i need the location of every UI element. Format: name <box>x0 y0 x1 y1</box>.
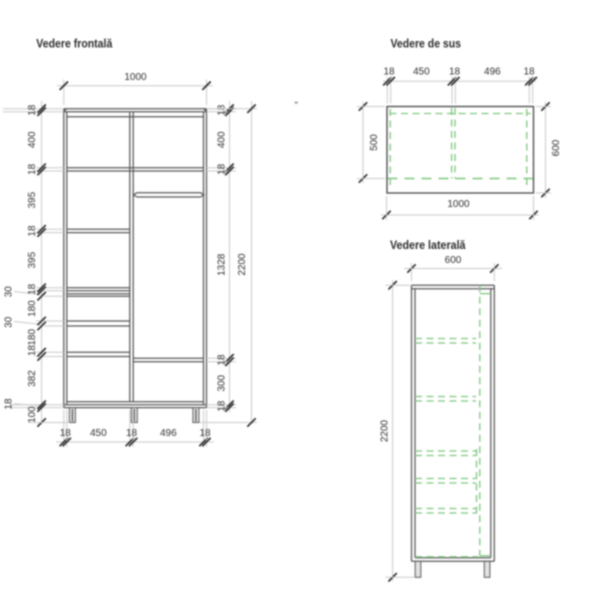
svg-text:496: 496 <box>484 67 501 78</box>
svg-text:18: 18 <box>199 428 211 439</box>
svg-text:Vedere frontală: Vedere frontală <box>36 36 112 50</box>
svg-text:18: 18 <box>4 398 15 410</box>
svg-text:18: 18 <box>27 163 38 175</box>
svg-text:100: 100 <box>27 406 38 423</box>
svg-text:180: 180 <box>27 329 38 346</box>
svg-text:18: 18 <box>217 104 228 116</box>
svg-text:18: 18 <box>27 104 38 116</box>
svg-text:18: 18 <box>126 428 138 439</box>
svg-text:18: 18 <box>449 67 461 78</box>
svg-text:18: 18 <box>383 67 395 78</box>
svg-text:400: 400 <box>217 131 228 148</box>
svg-text:300: 300 <box>217 375 228 392</box>
svg-text:180: 180 <box>27 300 38 317</box>
svg-text:18: 18 <box>27 283 38 295</box>
svg-text:395: 395 <box>27 191 38 208</box>
svg-text:395: 395 <box>27 251 38 268</box>
svg-text:2200: 2200 <box>237 253 248 276</box>
svg-text:382: 382 <box>27 370 38 387</box>
svg-text:600: 600 <box>551 139 562 156</box>
svg-text:1000: 1000 <box>124 72 147 83</box>
svg-text:30: 30 <box>4 316 15 328</box>
svg-text:Vedere de sus: Vedere de sus <box>391 37 462 51</box>
svg-text:500: 500 <box>369 134 380 151</box>
svg-text:496: 496 <box>160 428 177 439</box>
svg-text:1000: 1000 <box>447 199 470 210</box>
svg-text:18: 18 <box>60 428 72 439</box>
svg-text:1328: 1328 <box>217 253 228 276</box>
svg-text:600: 600 <box>445 255 462 266</box>
svg-text:400: 400 <box>27 131 38 148</box>
svg-text:18: 18 <box>27 345 38 357</box>
svg-text:18: 18 <box>217 400 228 412</box>
svg-text:18: 18 <box>523 67 535 78</box>
svg-text:450: 450 <box>90 428 107 439</box>
svg-text:450: 450 <box>413 67 430 78</box>
svg-text:Vedere laterală: Vedere laterală <box>390 238 466 252</box>
svg-text:30: 30 <box>4 286 15 298</box>
svg-text:2200: 2200 <box>380 419 391 442</box>
svg-text:18: 18 <box>217 163 228 175</box>
svg-text:18: 18 <box>217 354 228 366</box>
svg-text:18: 18 <box>27 225 38 237</box>
